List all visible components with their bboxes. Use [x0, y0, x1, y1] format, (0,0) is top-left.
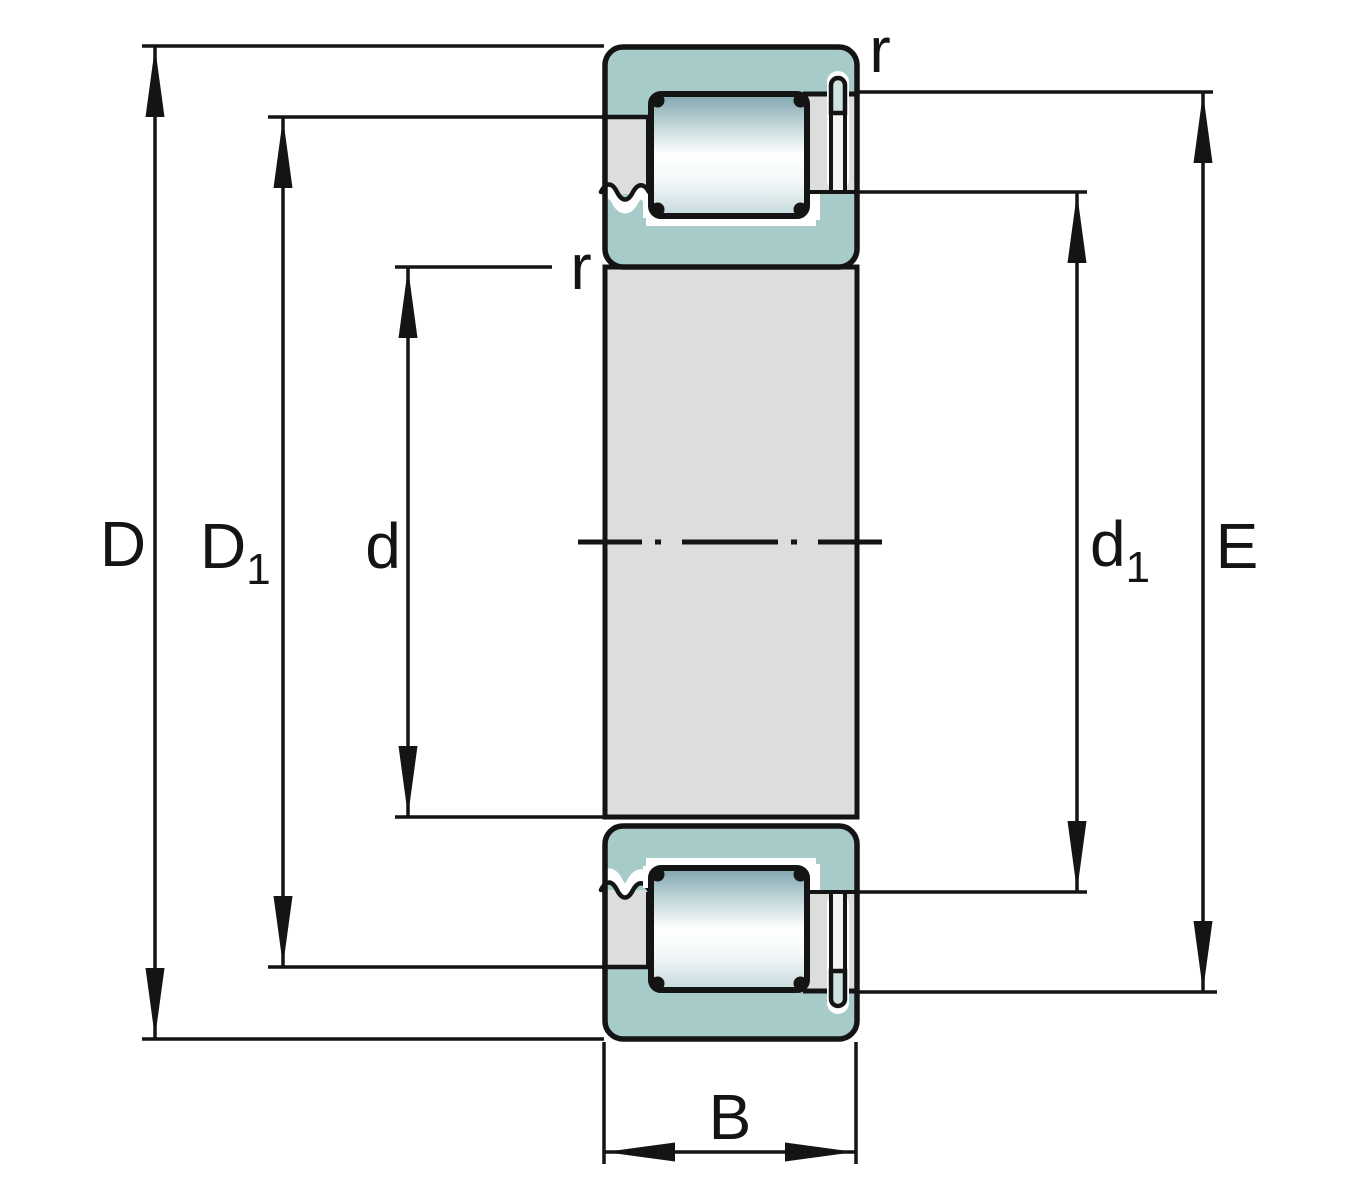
arrowhead	[1068, 193, 1087, 263]
dimension-E	[857, 92, 1217, 992]
radius-label-r-outer: r	[869, 14, 890, 86]
dimension-d	[395, 267, 604, 817]
arrowhead	[1068, 821, 1087, 891]
roller-corner	[794, 868, 808, 882]
arrowhead	[785, 1143, 855, 1162]
outer-ring-top-section	[601, 47, 858, 267]
dimension-label-D: D	[100, 508, 146, 580]
arrowhead	[146, 47, 165, 117]
dimension-label-E: E	[1216, 510, 1259, 582]
arrowhead	[274, 118, 293, 188]
arrowhead	[399, 268, 418, 338]
snap-ring-bottom-upper	[831, 892, 845, 972]
roller-corner	[794, 977, 808, 991]
technical-drawing-bearing-cross-section: D D1 d d1 E B r r	[0, 0, 1350, 1200]
dimension-label-d1: d1	[1090, 508, 1150, 592]
arrowhead	[1194, 921, 1213, 991]
snap-ring-top-lower	[831, 112, 845, 192]
roller-corner	[794, 94, 808, 108]
arrowhead	[605, 1143, 675, 1162]
bearing-dimension-diagram: D D1 d d1 E B r r	[0, 0, 1350, 1200]
snap-ring-bottom	[831, 971, 845, 1006]
arrowhead	[399, 746, 418, 816]
dimension-d1	[857, 192, 1087, 892]
arrowhead	[146, 968, 165, 1038]
dimension-label-d: d	[365, 510, 401, 582]
snap-ring-top	[831, 78, 845, 113]
dimension-label-D1: D1	[200, 510, 271, 594]
roller-corner	[794, 203, 808, 217]
roller-corner	[651, 977, 665, 991]
roller-corner	[651, 868, 665, 882]
roller-corner	[651, 203, 665, 217]
roller-bottom	[651, 868, 807, 990]
outer-ring-bottom-section	[601, 826, 858, 1039]
arrowhead	[274, 896, 293, 966]
arrowhead	[1194, 93, 1213, 163]
roller-corner	[651, 94, 665, 108]
roller-top	[651, 94, 807, 216]
inner-ring-flange-bottom	[602, 890, 648, 968]
dimension-label-B: B	[709, 1081, 752, 1153]
dimension-D1	[268, 117, 604, 967]
radius-label-r-inner: r	[570, 231, 591, 303]
